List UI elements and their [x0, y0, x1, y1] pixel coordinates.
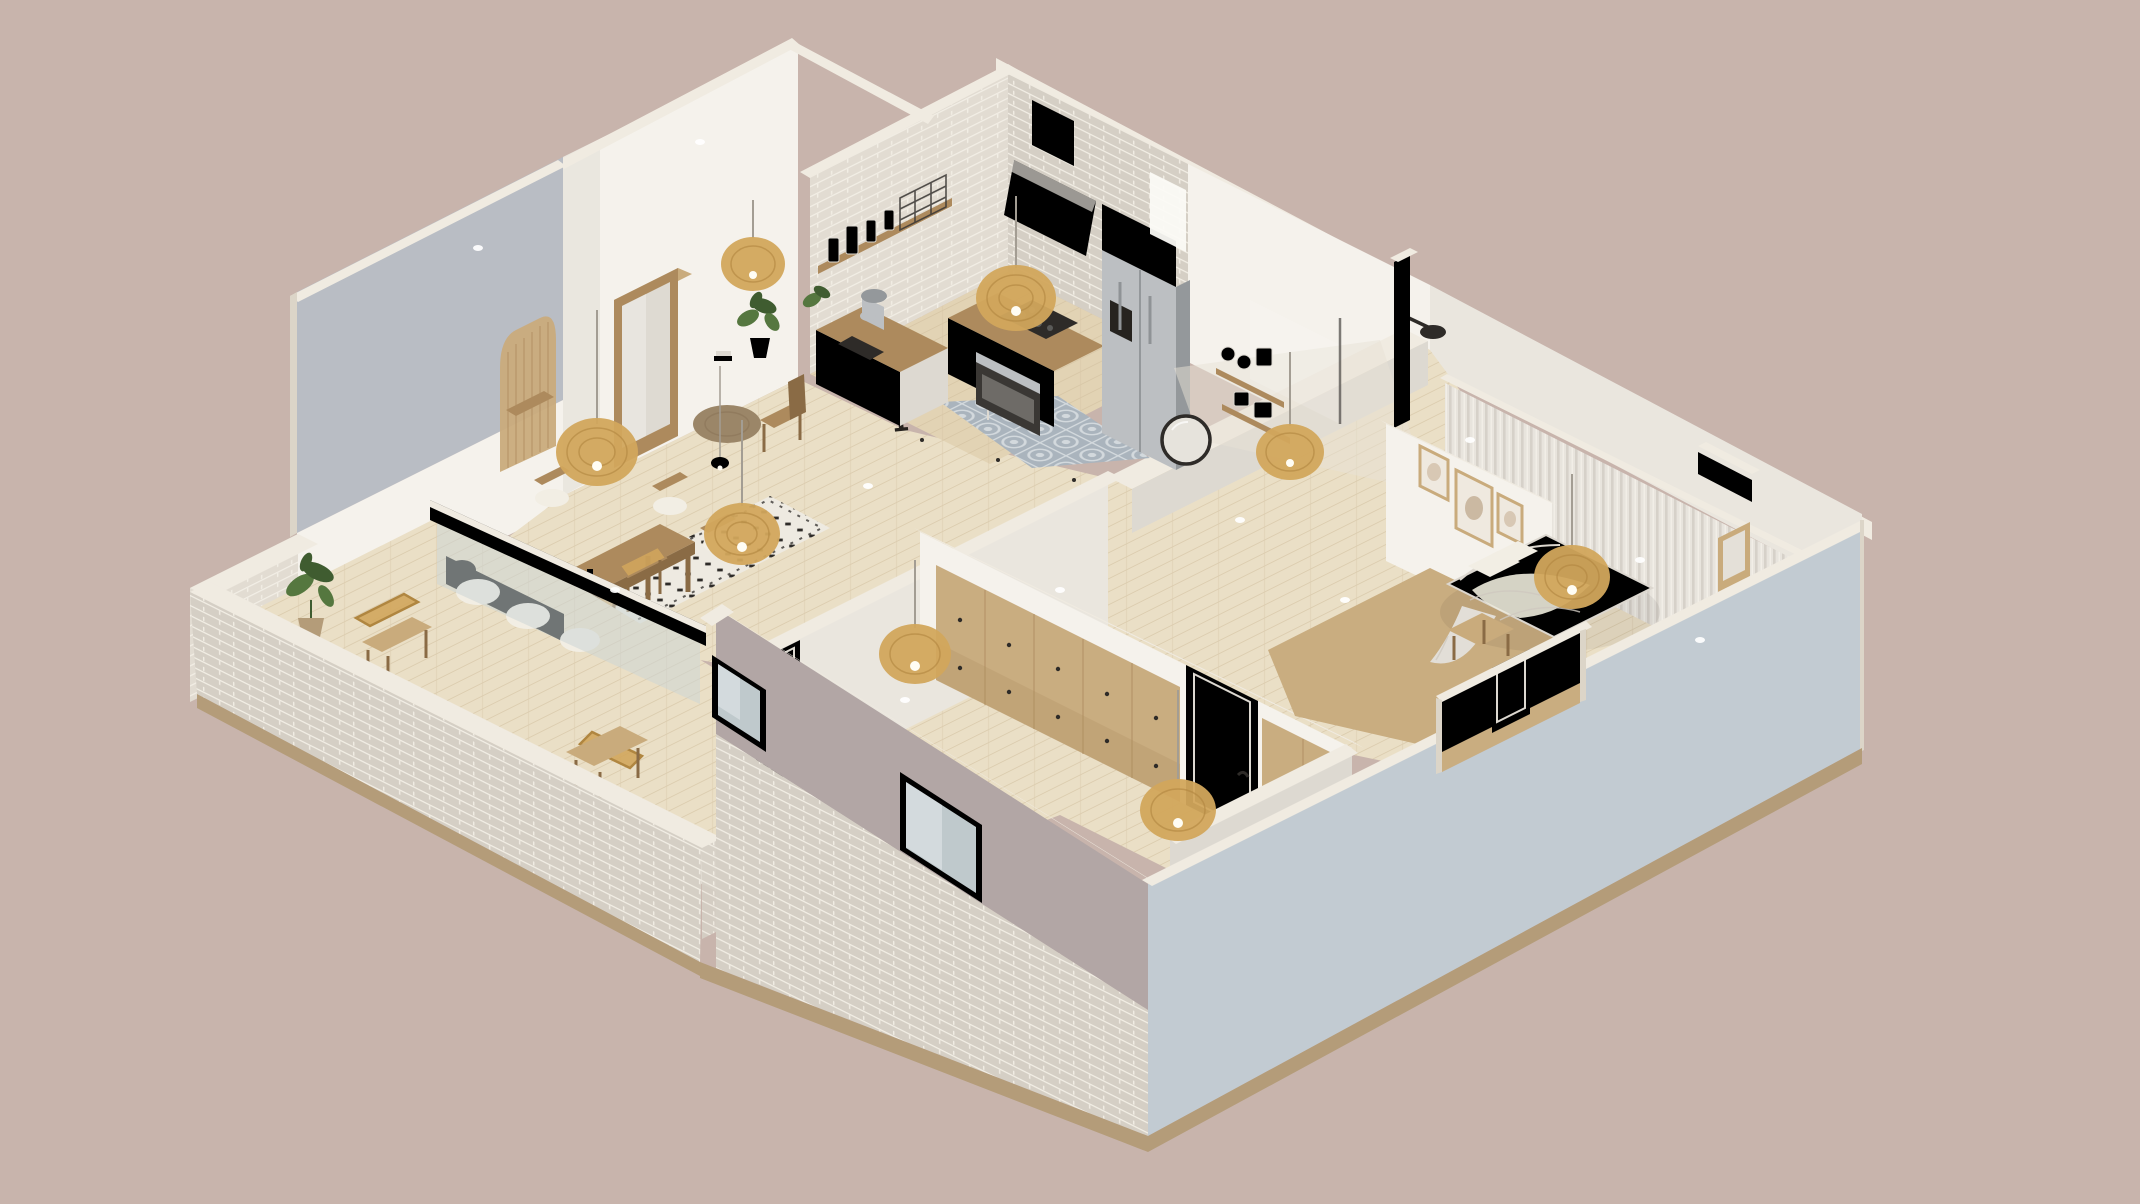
isometric-apartment-svg: 2 1 — [0, 0, 2140, 1204]
round-jute-rug — [693, 405, 761, 443]
west-wall-edge — [290, 292, 297, 537]
partition-end-face — [1394, 254, 1410, 428]
arched-fluted-niche — [500, 316, 556, 472]
shower-head — [1420, 325, 1446, 339]
round-black-mirror — [1162, 416, 1210, 464]
book-stack — [714, 351, 732, 361]
floorplan-render: 2 1 — [0, 0, 2140, 1204]
east-corner-edge — [1860, 520, 1864, 752]
